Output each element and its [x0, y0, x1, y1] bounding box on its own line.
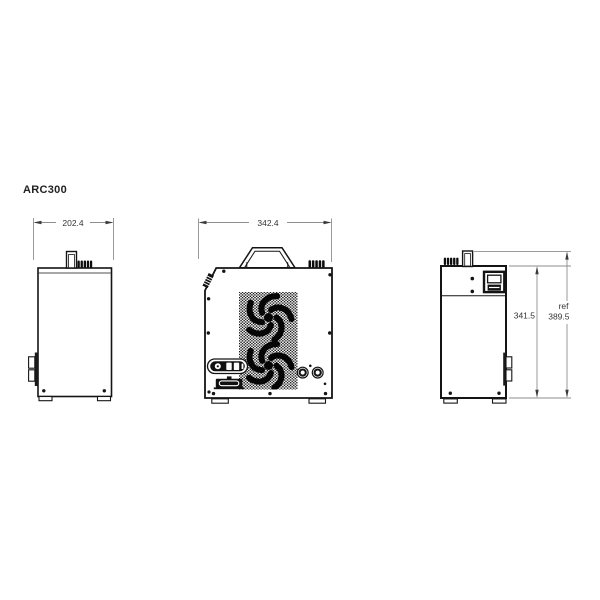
screw-dot	[268, 392, 271, 395]
foot	[39, 397, 52, 401]
dim-text-ref-label: ref	[559, 301, 570, 311]
screw-dot	[42, 389, 45, 392]
top-knob	[67, 252, 77, 269]
screw-dot	[324, 383, 327, 386]
power-inlet-switch	[208, 359, 248, 374]
technical-drawing: 202.4	[0, 0, 600, 600]
foot	[98, 397, 111, 401]
dim-text-right-height: 341.5	[514, 311, 536, 321]
screw-dot	[328, 331, 331, 334]
circular-connector-right	[312, 367, 323, 378]
arrowhead-right	[106, 221, 114, 225]
arrowhead-left	[199, 221, 207, 225]
dim-text-front-width: 342.4	[257, 218, 279, 228]
right-side-view: 341.5 ref 389.5	[441, 251, 573, 403]
screw-dot	[222, 270, 225, 273]
ribbed-vent	[309, 260, 325, 268]
left-body	[38, 268, 112, 397]
data-port	[484, 272, 504, 292]
foot	[493, 399, 507, 403]
ribbed-vent	[78, 261, 93, 269]
drawing-sheet: ARC300 202.4	[0, 0, 600, 600]
foot	[212, 399, 229, 403]
screw-dot	[207, 331, 210, 334]
screw-dot	[103, 389, 106, 392]
dim-text-left-width: 202.4	[62, 218, 84, 228]
dim-text-ref-height: 389.5	[548, 312, 570, 322]
side-tabs	[29, 353, 38, 387]
arrowhead-up	[565, 252, 568, 260]
foot	[444, 399, 458, 403]
foot	[309, 399, 326, 403]
screw-dot	[309, 365, 312, 368]
arrowhead-down	[535, 390, 538, 398]
screw-dot	[324, 392, 327, 395]
circular-connector-left	[297, 367, 308, 378]
screw-dot	[328, 273, 331, 276]
side-tabs	[503, 353, 512, 386]
ribbed-vent	[444, 258, 459, 265]
arrowhead-left	[34, 221, 42, 225]
front-view: 342.4	[199, 217, 333, 403]
arrowhead-up	[535, 266, 538, 274]
left-side-view: 202.4	[29, 217, 114, 401]
screw-dot	[497, 392, 500, 395]
screw-dot	[449, 392, 452, 395]
carry-handle	[240, 248, 296, 268]
fan-grille	[239, 292, 298, 390]
honeycomb-grille	[239, 292, 298, 390]
arrowhead-down	[565, 390, 568, 398]
screw-dot	[212, 392, 215, 395]
screw-dot	[207, 297, 210, 300]
screw-dot	[207, 390, 210, 393]
arrowhead-right	[324, 221, 332, 225]
screw-dot	[471, 290, 475, 294]
screw-dot	[471, 277, 475, 281]
top-knob	[463, 251, 473, 267]
